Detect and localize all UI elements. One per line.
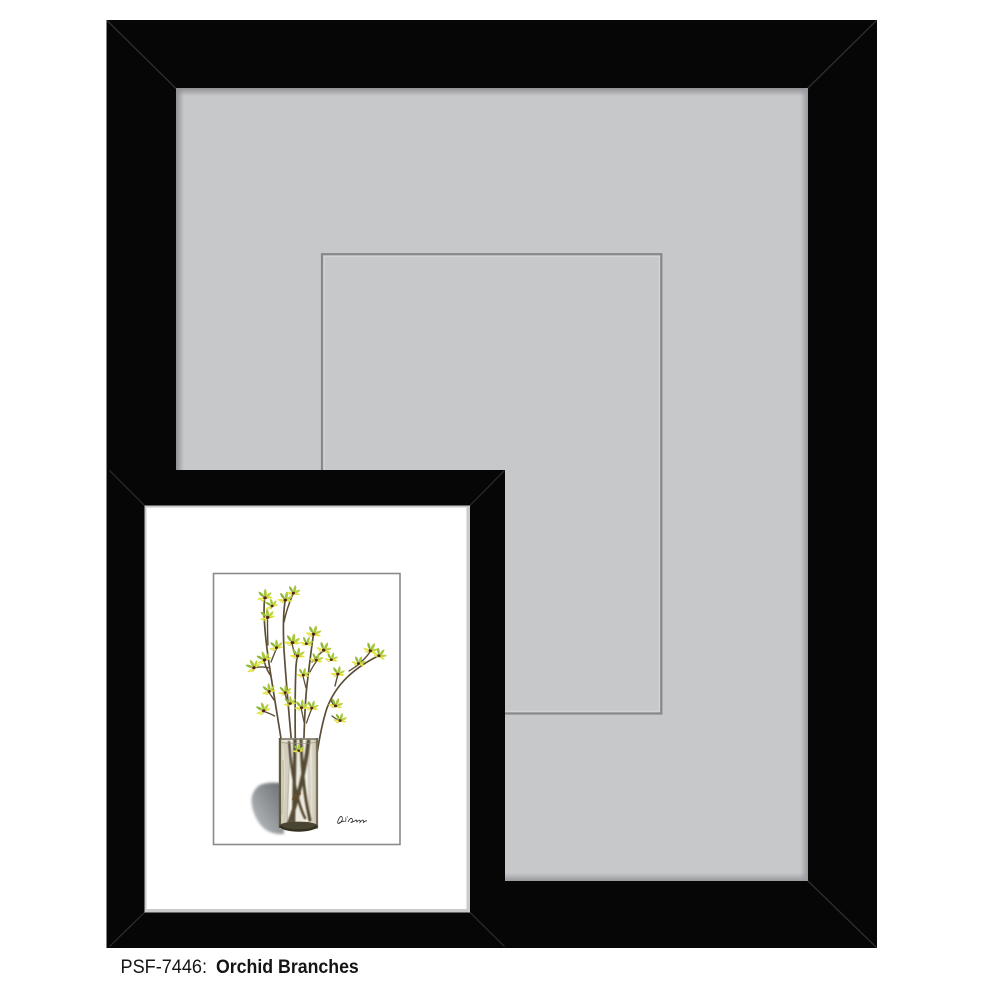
svg-text:Orchid Branches: Orchid Branches [216,956,359,978]
svg-text:PSF-7446:: PSF-7446: [121,956,208,978]
